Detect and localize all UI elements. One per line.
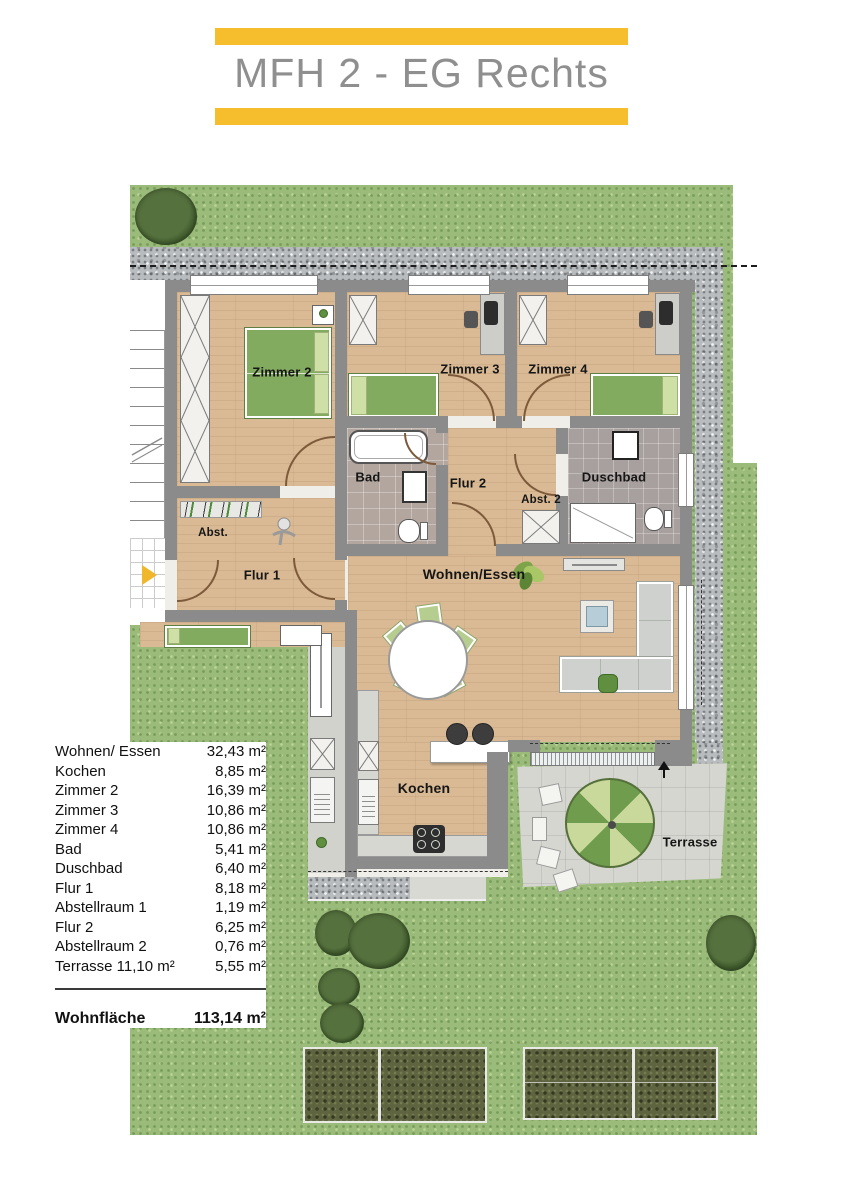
- table-row: Duschbad6,40 m²: [55, 859, 266, 879]
- floor-plan-page: MFH 2 - EG Rechts: [0, 0, 847, 1200]
- window-wohnen: [678, 585, 694, 710]
- pillow: [351, 376, 367, 415]
- bush: [318, 968, 360, 1006]
- label-terrasse: Terrasse: [663, 835, 718, 850]
- toilet-tank: [420, 522, 428, 540]
- window-zimmer3: [408, 275, 490, 295]
- row-value: 5,55 m²: [215, 957, 266, 977]
- wall: [487, 752, 508, 869]
- wall: [165, 280, 177, 560]
- wall: [345, 610, 357, 877]
- fridge: [358, 741, 379, 771]
- label-wohnen-essen: Wohnen/Essen: [423, 566, 526, 582]
- window-zimmer4: [567, 275, 649, 295]
- title-bar-bottom: [215, 108, 628, 125]
- row-label: Flur 1: [55, 879, 93, 899]
- boundary-dashed-line: [130, 265, 757, 267]
- entrance-arrow-icon: [142, 565, 157, 585]
- overhang-dashed-line: [530, 743, 670, 744]
- desk-chair: [464, 311, 478, 328]
- row-value: 6,40 m²: [215, 859, 266, 879]
- row-value: 10,86 m²: [207, 820, 266, 840]
- person-figure: [270, 515, 298, 547]
- label-flur1: Flur 1: [244, 568, 281, 583]
- desk-items: [484, 301, 498, 325]
- row-label: Terrasse 11,10 m²: [55, 957, 175, 977]
- table-row: Abstellraum 11,19 m²: [55, 898, 266, 918]
- row-value: 16,39 m²: [207, 781, 266, 801]
- sideboard-item: [572, 564, 617, 566]
- hedge-divider: [632, 1049, 635, 1118]
- label-abst2: Abst. 2: [521, 494, 561, 506]
- hedge-line: [525, 1082, 716, 1083]
- hedge-right: [523, 1047, 718, 1120]
- wall: [496, 416, 522, 428]
- bar-stool: [472, 723, 494, 745]
- neighbor-oven: [310, 777, 335, 823]
- overhang-dashed-line-vertical: [701, 580, 702, 705]
- row-label: Zimmer 3: [55, 801, 118, 821]
- table-row: Flur 18,18 m²: [55, 879, 266, 899]
- parasol: [565, 778, 655, 868]
- table-row: Wohnen/ Essen32,43 m²: [55, 742, 266, 762]
- row-label: Duschbad: [55, 859, 123, 879]
- wardrobe-zimmer2: [180, 295, 210, 483]
- toilet-tank: [664, 510, 672, 528]
- row-value: 5,41 m²: [215, 840, 266, 860]
- label-zimmer2: Zimmer 2: [252, 365, 311, 380]
- wall: [345, 857, 508, 869]
- wall: [505, 292, 517, 416]
- label-abst: Abst.: [198, 527, 228, 539]
- pillow: [168, 628, 180, 644]
- area-total-row: Wohnfläche 113,14 m²: [55, 1010, 266, 1028]
- window-zimmer2: [190, 275, 318, 295]
- row-value: 32,43 m²: [207, 742, 266, 762]
- bar-stool: [446, 723, 468, 745]
- row-label: Flur 2: [55, 918, 93, 938]
- area-total-label: Wohnfläche: [55, 1010, 145, 1028]
- toilet-bad: [398, 519, 420, 543]
- wall: [335, 416, 448, 428]
- row-label: Zimmer 2: [55, 781, 118, 801]
- row-label: Abstellraum 2: [55, 937, 147, 957]
- wall: [570, 416, 692, 428]
- label-kochen: Kochen: [398, 780, 451, 796]
- row-value: 1,19 m²: [215, 898, 266, 918]
- terrace-door: [530, 752, 655, 766]
- table-row: Abstellraum 20,76 m²: [55, 937, 266, 957]
- plant-icon: [316, 837, 327, 848]
- neighbor-furniture: [280, 625, 322, 646]
- background-notch: [733, 185, 757, 463]
- gravel-strip-right: [695, 247, 723, 743]
- sideboard: [563, 558, 625, 571]
- coffee-table: [580, 600, 614, 633]
- area-table: Wohnen/ Essen32,43 m²Kochen8,85 m²Zimmer…: [55, 742, 266, 1028]
- staircase: [130, 330, 165, 538]
- wall: [436, 428, 448, 433]
- row-value: 8,18 m²: [215, 879, 266, 899]
- gravel-corner: [697, 743, 723, 765]
- desk-chair: [639, 311, 653, 328]
- bush: [348, 913, 410, 969]
- bush-top-left: [135, 188, 197, 245]
- row-label: Abstellraum 1: [55, 898, 147, 918]
- plant-pot: [598, 674, 618, 693]
- wall: [335, 556, 347, 560]
- gravel-strip-bottom: [308, 877, 410, 901]
- oven: [358, 779, 379, 825]
- storage-abst2-box: [522, 510, 560, 544]
- row-value: 10,86 m²: [207, 801, 266, 821]
- label-zimmer3: Zimmer 3: [440, 362, 499, 377]
- wall: [556, 428, 568, 454]
- terrace-entry-arrow-stem: [663, 769, 665, 778]
- row-value: 6,25 m²: [215, 918, 266, 938]
- wall: [177, 486, 280, 498]
- table-row: Zimmer 410,86 m²: [55, 820, 266, 840]
- plant-icon: [319, 309, 328, 318]
- wall: [335, 544, 448, 556]
- pillow: [314, 374, 329, 414]
- shower: [570, 503, 636, 543]
- title-bar-top: [215, 28, 628, 45]
- row-value: 0,76 m²: [215, 937, 266, 957]
- page-title: MFH 2 - EG Rechts: [215, 48, 628, 98]
- wall: [508, 740, 540, 752]
- bush-right: [706, 915, 756, 971]
- label-duschbad: Duschbad: [582, 470, 646, 485]
- row-label: Bad: [55, 840, 82, 860]
- table-row: Zimmer 216,39 m²: [55, 781, 266, 801]
- row-value: 8,85 m²: [215, 762, 266, 782]
- area-table-rows: Wohnen/ Essen32,43 m²Kochen8,85 m²Zimmer…: [55, 742, 266, 976]
- wardrobe-zimmer3: [349, 295, 377, 345]
- walkway: [410, 877, 486, 901]
- washbasin-bad: [402, 471, 427, 503]
- table-row: Zimmer 310,86 m²: [55, 801, 266, 821]
- table-row: Kochen8,85 m²: [55, 762, 266, 782]
- row-label: Kochen: [55, 762, 106, 782]
- washbasin-duschbad: [612, 431, 639, 460]
- area-total-value: 113,14 m²: [194, 1010, 266, 1028]
- table-row: Bad5,41 m²: [55, 840, 266, 860]
- dining-table: [388, 620, 468, 700]
- coat-rack: [180, 501, 262, 518]
- toilet-duschbad: [644, 507, 664, 531]
- pillow: [662, 376, 678, 415]
- area-table-divider: [55, 988, 266, 990]
- wall: [165, 610, 345, 622]
- wall: [496, 544, 692, 556]
- overhang-dashed-line: [308, 871, 508, 872]
- bush: [320, 1003, 364, 1043]
- row-label: Wohnen/ Essen: [55, 742, 161, 762]
- hedge-divider: [378, 1049, 381, 1121]
- table-row: Flur 26,25 m²: [55, 918, 266, 938]
- window-duschbad: [678, 453, 694, 507]
- desk-items: [659, 301, 673, 325]
- hedge-left: [303, 1047, 487, 1123]
- wardrobe-zimmer4: [519, 295, 547, 345]
- terrace-table: [532, 817, 547, 841]
- neighbor-fridge: [310, 738, 335, 770]
- wall: [335, 600, 347, 610]
- label-flur2: Flur 2: [450, 476, 487, 491]
- pillow: [314, 332, 329, 372]
- row-label: Zimmer 4: [55, 820, 118, 840]
- cooktop: [413, 825, 445, 853]
- label-bad: Bad: [355, 470, 380, 485]
- table-row: Terrasse 11,10 m²5,55 m²: [55, 957, 266, 977]
- label-zimmer4: Zimmer 4: [528, 362, 587, 377]
- wall: [436, 465, 448, 544]
